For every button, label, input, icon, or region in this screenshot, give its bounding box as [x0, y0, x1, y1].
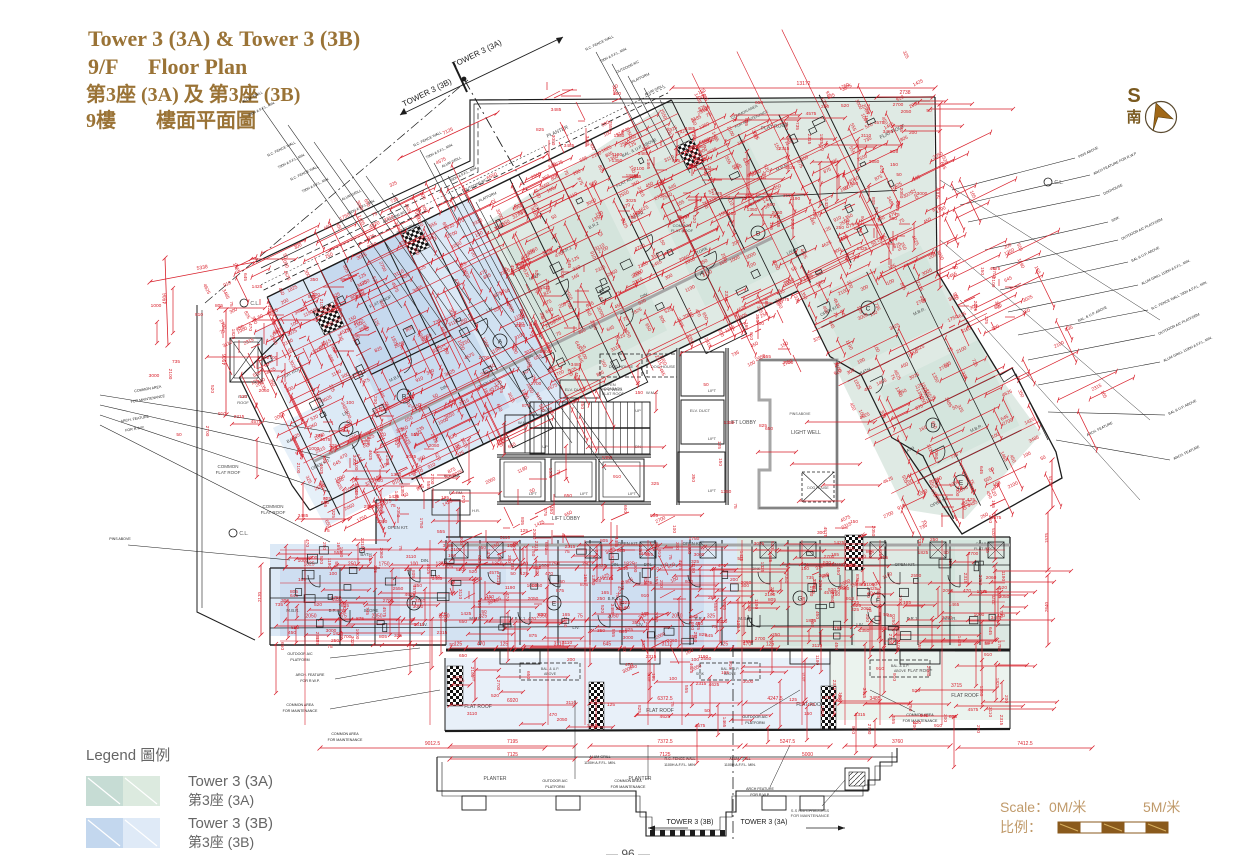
svg-text:FLAT ROOF: FLAT ROOF: [646, 708, 674, 714]
svg-text:E: E: [552, 601, 557, 608]
svg-text:520: 520: [599, 605, 605, 613]
svg-text:1190: 1190: [612, 152, 623, 158]
svg-text:50: 50: [926, 108, 932, 114]
svg-text:645: 645: [978, 466, 984, 474]
svg-text:4575: 4575: [509, 265, 515, 276]
svg-text:470: 470: [477, 642, 486, 648]
svg-text:1750: 1750: [689, 536, 700, 542]
svg-text:450: 450: [987, 515, 993, 523]
svg-text:C.L.: C.L.: [250, 301, 259, 307]
svg-text:2700: 2700: [204, 426, 210, 437]
svg-text:OPEN KIT.: OPEN KIT.: [388, 525, 409, 530]
svg-text:825: 825: [949, 714, 957, 720]
svg-text:7195: 7195: [507, 739, 518, 745]
svg-text:1350: 1350: [819, 706, 825, 717]
svg-text:450: 450: [288, 630, 296, 636]
svg-text:75: 75: [539, 313, 545, 319]
svg-text:2060: 2060: [933, 449, 939, 460]
svg-text:2700: 2700: [479, 355, 490, 361]
svg-text:75: 75: [228, 301, 234, 307]
svg-text:1465: 1465: [721, 717, 727, 728]
svg-text:2315: 2315: [437, 630, 448, 636]
svg-text:1425: 1425: [252, 284, 263, 290]
svg-text:250: 250: [579, 401, 585, 409]
svg-text:2700: 2700: [893, 102, 904, 108]
svg-text:3110: 3110: [618, 566, 629, 572]
svg-text:75: 75: [732, 503, 738, 509]
svg-text:3025: 3025: [596, 563, 607, 569]
svg-text:2315: 2315: [414, 622, 425, 628]
svg-text:645: 645: [920, 713, 928, 719]
svg-text:2315: 2315: [962, 573, 968, 584]
svg-text:3485: 3485: [686, 544, 692, 555]
svg-text:805: 805: [721, 602, 727, 610]
svg-text:470: 470: [247, 323, 253, 331]
svg-text:125: 125: [716, 441, 722, 449]
svg-text:5M/米: 5M/米: [1143, 799, 1180, 815]
svg-text:ARCH. FEATURE: ARCH. FEATURE: [296, 673, 325, 677]
svg-text:2315: 2315: [359, 538, 365, 549]
svg-text:1425: 1425: [485, 549, 491, 560]
svg-text:2700: 2700: [991, 268, 997, 279]
svg-text:1350: 1350: [721, 489, 732, 495]
svg-text:1350: 1350: [399, 486, 405, 497]
svg-text:100: 100: [735, 620, 741, 628]
svg-text:875: 875: [687, 616, 693, 624]
svg-text:125: 125: [967, 497, 975, 503]
svg-text:825: 825: [498, 385, 504, 393]
svg-text:805: 805: [890, 149, 898, 155]
svg-text:300: 300: [281, 598, 289, 604]
svg-text:165: 165: [721, 670, 729, 676]
svg-text:825: 825: [642, 577, 648, 585]
svg-text:350: 350: [690, 474, 696, 482]
svg-text:735: 735: [364, 607, 370, 615]
svg-text:2060: 2060: [943, 588, 954, 594]
svg-text:2315: 2315: [998, 715, 1004, 726]
svg-text:875: 875: [556, 588, 564, 594]
svg-text:1825: 1825: [818, 134, 824, 145]
svg-text:4575: 4575: [695, 723, 706, 729]
svg-text:350: 350: [506, 555, 512, 563]
svg-text:805: 805: [290, 589, 298, 595]
svg-text:50: 50: [703, 382, 709, 388]
svg-text:555: 555: [683, 685, 689, 693]
svg-text:450: 450: [833, 642, 839, 650]
svg-text:1350: 1350: [614, 133, 625, 139]
svg-text:1465: 1465: [645, 159, 651, 170]
svg-text:75: 75: [344, 423, 350, 429]
svg-text:520: 520: [912, 688, 920, 694]
svg-text:200: 200: [911, 722, 917, 730]
svg-text:520: 520: [999, 585, 1007, 591]
svg-text:LIV.: LIV.: [572, 625, 579, 630]
svg-text:650: 650: [459, 653, 467, 659]
svg-text:FOR R.W.P.: FOR R.W.P.: [750, 793, 769, 797]
svg-text:910: 910: [984, 652, 992, 658]
svg-text:4247.5: 4247.5: [767, 696, 783, 702]
svg-text:2050: 2050: [305, 614, 316, 620]
svg-text:4625: 4625: [660, 714, 671, 720]
svg-text:100: 100: [756, 321, 764, 327]
svg-text:910: 910: [748, 332, 754, 340]
svg-text:910: 910: [195, 312, 203, 318]
svg-text:555: 555: [916, 642, 922, 650]
svg-text:1350: 1350: [724, 420, 735, 426]
svg-text:250: 250: [783, 122, 789, 130]
svg-text:3485: 3485: [584, 136, 590, 147]
svg-text:第3座 (3A) 及 第3座 (3B): 第3座 (3A) 及 第3座 (3B): [86, 82, 300, 106]
svg-text:325: 325: [651, 481, 659, 487]
svg-text:3485: 3485: [861, 688, 867, 699]
svg-text:FLAT ROOF: FLAT ROOF: [261, 510, 286, 515]
svg-text:805: 805: [410, 570, 416, 578]
svg-text:450: 450: [867, 550, 873, 558]
svg-text:UP: UP: [542, 444, 548, 449]
svg-text:1350: 1350: [859, 628, 870, 634]
svg-text:150: 150: [804, 711, 812, 717]
svg-text:825: 825: [636, 705, 642, 713]
svg-text:825: 825: [536, 127, 544, 133]
svg-text:250: 250: [708, 595, 716, 601]
svg-text:165: 165: [562, 612, 570, 618]
svg-text:LIGHT WELL: LIGHT WELL: [791, 430, 821, 436]
svg-text:910: 910: [651, 566, 659, 572]
svg-text:COMMON AREA: COMMON AREA: [614, 779, 642, 783]
svg-text:1750: 1750: [996, 641, 1002, 652]
svg-text:COMMON AREA: COMMON AREA: [286, 703, 314, 707]
svg-text:805: 805: [650, 513, 658, 519]
svg-text:2315: 2315: [723, 291, 729, 302]
svg-text:PLATFORM: PLATFORM: [290, 658, 309, 662]
svg-text:FOR MAINTENANCE: FOR MAINTENANCE: [791, 813, 830, 818]
svg-text:C: C: [866, 306, 871, 313]
svg-text:1190: 1190: [1000, 571, 1006, 582]
svg-text:2060: 2060: [746, 601, 752, 612]
svg-text:165: 165: [601, 590, 609, 596]
svg-text:300: 300: [674, 542, 680, 550]
svg-text:3110: 3110: [500, 535, 511, 541]
svg-text:100: 100: [329, 571, 337, 577]
svg-text:3715: 3715: [951, 683, 962, 689]
svg-text:645: 645: [603, 642, 612, 648]
svg-text:125: 125: [500, 642, 509, 648]
svg-text:ELV. DUCT: ELV. DUCT: [690, 408, 711, 413]
svg-text:LIFT: LIFT: [708, 388, 717, 393]
svg-text:910: 910: [891, 673, 897, 681]
svg-text:9/F: 9/F: [88, 54, 119, 79]
svg-text:5247.5: 5247.5: [780, 739, 796, 745]
svg-text:Tower 3 (3B): Tower 3 (3B): [188, 815, 273, 832]
svg-text:3110: 3110: [861, 133, 872, 139]
svg-text:300: 300: [864, 614, 870, 622]
svg-text:825: 825: [476, 555, 482, 563]
svg-text:2050: 2050: [671, 614, 682, 620]
svg-text:2050: 2050: [528, 596, 539, 602]
svg-text:165: 165: [768, 222, 774, 230]
svg-text:4575: 4575: [381, 607, 387, 618]
svg-text:7372.5: 7372.5: [657, 739, 673, 745]
svg-text:1000: 1000: [298, 558, 309, 564]
svg-text:4575: 4575: [822, 527, 828, 538]
svg-text:520: 520: [318, 556, 324, 564]
svg-text:BAL. & U.P.: BAL. & U.P.: [891, 664, 909, 668]
svg-text:50: 50: [409, 617, 415, 623]
svg-text:1750: 1750: [442, 612, 448, 623]
svg-text:4625: 4625: [367, 450, 373, 461]
svg-text:50: 50: [896, 172, 902, 178]
svg-text:COMMON: COMMON: [263, 504, 284, 509]
svg-text:OUTDOOR A/C: OUTDOOR A/C: [542, 779, 568, 783]
svg-text:165: 165: [650, 673, 656, 681]
svg-text:3025: 3025: [626, 198, 637, 204]
svg-text:2050: 2050: [977, 575, 983, 586]
svg-text:3025: 3025: [640, 640, 646, 651]
svg-text:2060: 2060: [817, 580, 823, 591]
svg-text:50: 50: [333, 561, 339, 567]
svg-text:2550: 2550: [393, 586, 404, 592]
svg-text:4575: 4575: [968, 707, 979, 713]
svg-text:650: 650: [538, 612, 546, 618]
svg-text:75: 75: [669, 701, 675, 707]
svg-text:TOWER 3 (3A): TOWER 3 (3A): [741, 819, 788, 826]
svg-text:470: 470: [545, 571, 553, 577]
svg-text:Floor Plan: Floor Plan: [148, 54, 247, 79]
svg-text:200: 200: [534, 568, 540, 576]
svg-text:650: 650: [887, 613, 895, 619]
svg-text:3760: 3760: [892, 739, 903, 745]
svg-text:520: 520: [456, 567, 464, 573]
svg-text:1000: 1000: [974, 612, 985, 618]
svg-text:1000: 1000: [354, 629, 360, 640]
svg-text:FOR R.W.P.: FOR R.W.P.: [300, 679, 319, 683]
svg-text:2100: 2100: [469, 667, 475, 678]
svg-text:OUTDOOR A/C: OUTDOOR A/C: [742, 715, 768, 719]
svg-text:470: 470: [963, 588, 971, 594]
svg-text:325: 325: [644, 622, 650, 630]
svg-text:1465: 1465: [846, 562, 857, 568]
svg-text:520: 520: [209, 385, 215, 393]
svg-text:735: 735: [998, 610, 1004, 618]
svg-text:910: 910: [934, 723, 942, 729]
svg-text:1750: 1750: [907, 701, 913, 712]
svg-text:2550: 2550: [743, 639, 754, 645]
svg-text:PIPE WELL: PIPE WELL: [601, 387, 623, 392]
svg-text:3025: 3025: [406, 454, 417, 460]
svg-text:1750: 1750: [378, 562, 389, 568]
svg-text:PLATFORM: PLATFORM: [745, 721, 764, 725]
svg-text:470: 470: [625, 662, 633, 668]
svg-text:1425: 1425: [759, 562, 765, 573]
svg-text:75: 75: [324, 528, 330, 534]
svg-text:PLANTER: PLANTER: [483, 776, 506, 782]
svg-text:4575: 4575: [619, 580, 625, 591]
svg-text:200: 200: [658, 580, 664, 588]
svg-text:LIFT: LIFT: [628, 491, 637, 496]
svg-text:Legend 圖例: Legend 圖例: [86, 747, 170, 764]
svg-text:735: 735: [315, 433, 323, 439]
svg-text:1465: 1465: [587, 723, 598, 729]
svg-text:2050: 2050: [783, 573, 789, 584]
svg-text:1825: 1825: [844, 546, 855, 552]
svg-text:650: 650: [767, 202, 775, 208]
svg-text:50: 50: [176, 432, 182, 438]
svg-text:555: 555: [712, 603, 718, 611]
svg-text:1750: 1750: [530, 546, 536, 557]
svg-text:650: 650: [279, 642, 285, 650]
svg-text:650: 650: [459, 619, 467, 625]
svg-text:2700: 2700: [866, 724, 872, 735]
svg-text:520: 520: [873, 207, 879, 215]
svg-text:555: 555: [890, 716, 896, 724]
svg-text:2550: 2550: [701, 656, 712, 662]
svg-text:9012.5: 9012.5: [425, 741, 441, 747]
svg-text:1190: 1190: [326, 558, 332, 569]
svg-text:805: 805: [379, 634, 387, 640]
svg-text:2050: 2050: [557, 717, 568, 723]
svg-text:75: 75: [667, 554, 673, 560]
svg-text:1100H A.F.F.L. MIN.: 1100H A.F.F.L. MIN.: [584, 761, 616, 765]
svg-text:1000: 1000: [377, 519, 388, 525]
svg-text:100: 100: [669, 676, 677, 682]
svg-text:150: 150: [393, 437, 399, 445]
svg-text:325: 325: [707, 614, 716, 620]
svg-text:4906: 4906: [222, 354, 228, 365]
svg-text:50: 50: [624, 605, 630, 611]
svg-text:3110: 3110: [415, 598, 426, 604]
svg-text:470: 470: [807, 702, 815, 708]
svg-text:3485: 3485: [883, 129, 894, 135]
svg-text:ABOVE: ABOVE: [544, 672, 557, 676]
svg-text:1190: 1190: [505, 585, 516, 591]
svg-text:520: 520: [314, 602, 322, 608]
svg-text:2100: 2100: [295, 463, 301, 474]
svg-text:2170: 2170: [257, 591, 262, 602]
svg-text:165: 165: [831, 552, 839, 558]
svg-text:2700: 2700: [495, 680, 501, 691]
svg-text:735: 735: [794, 122, 800, 130]
svg-text:3485: 3485: [609, 604, 615, 615]
svg-text:50: 50: [704, 708, 710, 714]
svg-text:125: 125: [720, 642, 729, 648]
svg-text:OPEN KIT.: OPEN KIT.: [895, 562, 916, 567]
svg-text:450: 450: [835, 567, 841, 575]
svg-text:100: 100: [346, 400, 354, 406]
svg-text:875: 875: [800, 597, 806, 605]
svg-text:1350: 1350: [547, 468, 553, 479]
svg-text:2060: 2060: [378, 548, 384, 559]
svg-text:3485: 3485: [571, 362, 582, 368]
svg-text:4575: 4575: [251, 419, 262, 425]
svg-text:1350: 1350: [978, 686, 984, 697]
svg-text:2060: 2060: [925, 666, 931, 677]
svg-text:3000: 3000: [550, 135, 556, 146]
svg-text:75: 75: [711, 624, 717, 630]
svg-text:555: 555: [763, 354, 771, 360]
svg-text:735: 735: [172, 359, 180, 365]
svg-text:3025: 3025: [754, 541, 765, 547]
svg-text:2100: 2100: [634, 166, 645, 172]
svg-text:3110: 3110: [467, 711, 478, 717]
svg-text:875: 875: [356, 616, 364, 622]
svg-text:645: 645: [242, 273, 248, 281]
svg-text:FLAT ROOF: FLAT ROOF: [216, 470, 241, 475]
svg-text:9樓 樓面平面圖: 9樓 樓面平面圖: [86, 109, 256, 132]
svg-text:2550: 2550: [364, 504, 375, 510]
svg-text:2550: 2550: [607, 121, 613, 132]
svg-text:470: 470: [878, 165, 884, 173]
svg-text:1825: 1825: [341, 603, 347, 614]
svg-text:1350: 1350: [602, 455, 613, 461]
svg-text:1000: 1000: [309, 446, 320, 452]
svg-text:4575: 4575: [411, 585, 417, 596]
svg-text:150: 150: [635, 390, 643, 396]
svg-text:3110: 3110: [457, 589, 463, 600]
svg-text:50: 50: [510, 571, 516, 577]
svg-text:W.M.C: W.M.C: [518, 420, 530, 425]
svg-text:650: 650: [765, 426, 773, 432]
svg-text:2100: 2100: [167, 369, 173, 380]
svg-text:1425: 1425: [977, 589, 988, 595]
svg-text:3110: 3110: [406, 554, 417, 560]
svg-text:650: 650: [622, 505, 628, 513]
svg-text:150: 150: [367, 555, 373, 563]
svg-text:1465: 1465: [384, 455, 390, 466]
svg-text:1190: 1190: [814, 655, 820, 666]
svg-text:Scale：0M/米: Scale：0M/米: [1000, 799, 1086, 815]
svg-text:DOG HOUSE: DOG HOUSE: [807, 486, 829, 490]
svg-text:2050: 2050: [429, 443, 440, 449]
svg-text:3110: 3110: [812, 643, 823, 649]
svg-text:450: 450: [814, 611, 820, 619]
svg-text:1350: 1350: [747, 207, 758, 213]
svg-text:150: 150: [613, 91, 621, 97]
svg-text:805: 805: [215, 303, 223, 309]
svg-text:PINS ABOVE: PINS ABOVE: [789, 412, 811, 416]
svg-text:第3座 (3A): 第3座 (3A): [188, 792, 254, 808]
svg-text:100: 100: [410, 562, 419, 568]
svg-text:2060: 2060: [515, 323, 526, 329]
svg-text:F: F: [876, 598, 880, 605]
svg-text:1350: 1350: [491, 562, 502, 568]
svg-text:3000: 3000: [149, 373, 160, 379]
svg-text:LIV.: LIV.: [856, 622, 863, 627]
svg-text:— 96 —: — 96 —: [606, 847, 650, 855]
svg-text:FOR MAINTENANCE: FOR MAINTENANCE: [328, 738, 363, 742]
svg-text:910: 910: [846, 596, 854, 602]
svg-text:3000: 3000: [617, 598, 623, 609]
svg-text:470: 470: [549, 712, 557, 718]
svg-text:2315: 2315: [646, 654, 657, 660]
svg-text:2550: 2550: [839, 586, 850, 592]
svg-text:1425: 1425: [857, 246, 868, 252]
svg-text:FLAT ROOF: FLAT ROOF: [951, 693, 979, 699]
svg-text:2700: 2700: [429, 474, 435, 485]
svg-text:1025: 1025: [991, 527, 996, 538]
svg-text:125: 125: [789, 697, 797, 703]
svg-text:450: 450: [695, 621, 703, 627]
svg-text:75: 75: [327, 644, 333, 650]
svg-text:150: 150: [635, 210, 643, 216]
svg-text:50: 50: [621, 646, 627, 652]
svg-text:2550: 2550: [865, 104, 871, 115]
svg-text:50: 50: [481, 609, 487, 615]
svg-text:50: 50: [943, 550, 949, 556]
svg-text:875: 875: [529, 633, 537, 639]
svg-text:75: 75: [577, 614, 583, 620]
svg-text:100: 100: [448, 553, 456, 559]
svg-text:3000: 3000: [694, 552, 705, 558]
